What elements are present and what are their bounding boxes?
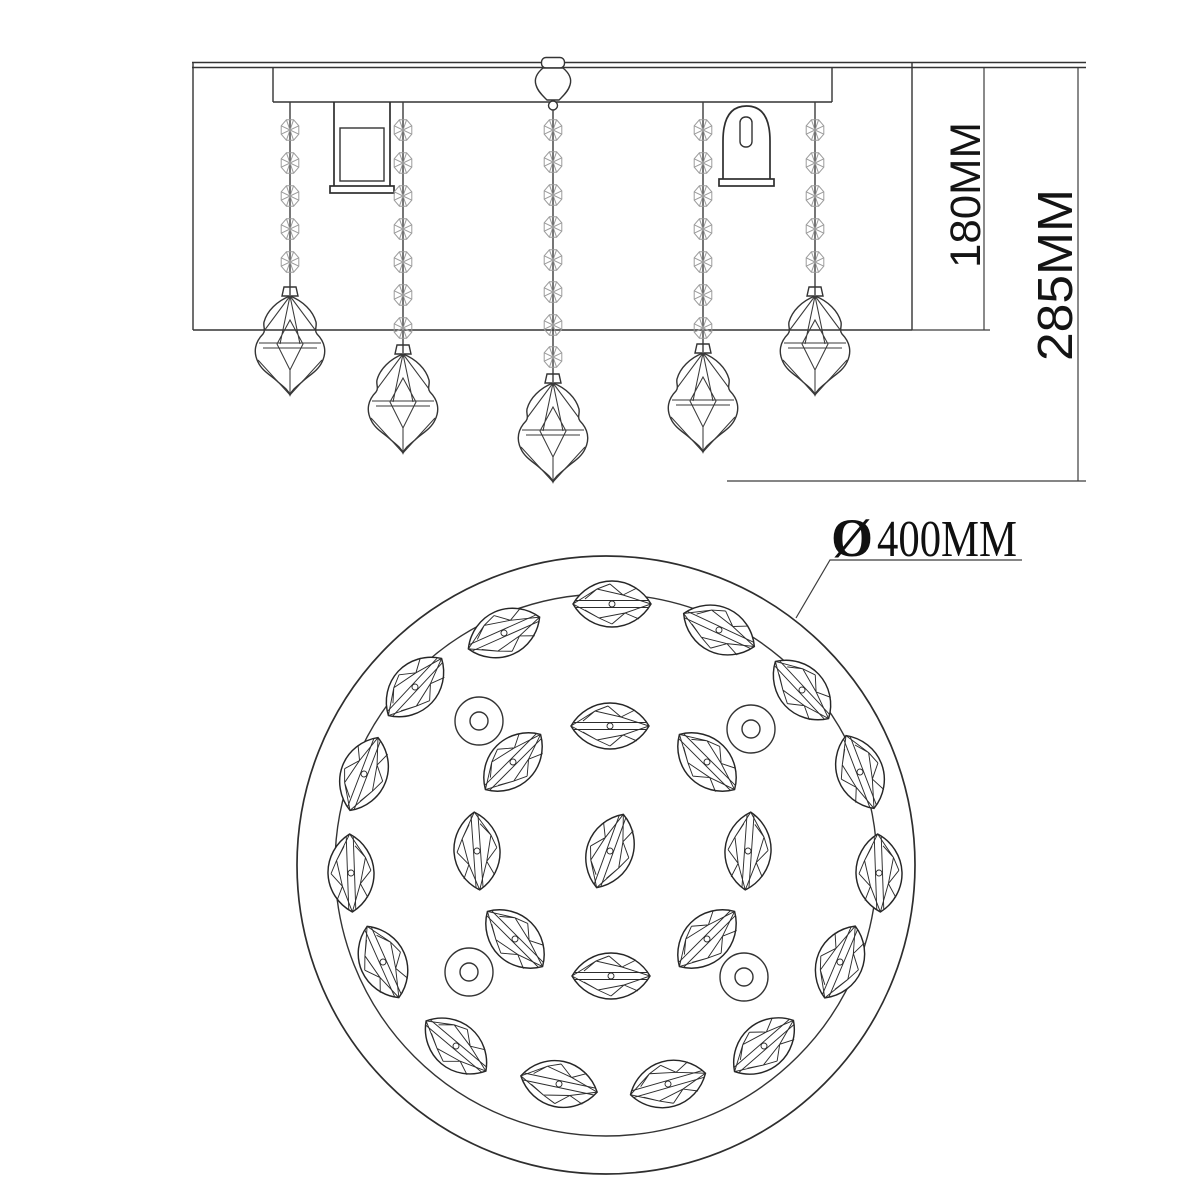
marquise-crystal bbox=[469, 718, 557, 806]
crystal-strand bbox=[368, 102, 437, 453]
pendant-drop bbox=[255, 287, 324, 395]
pendant-drop bbox=[518, 374, 587, 482]
elevation-view: 180MM 285MM bbox=[192, 58, 1086, 483]
marquise-crystal bbox=[516, 1053, 602, 1114]
technical-drawing-page: 180MM 285MM Ø 400MM bbox=[0, 0, 1200, 1200]
marquise-crystal bbox=[346, 917, 420, 1007]
marquise-crystal bbox=[471, 895, 559, 983]
pendant-drop bbox=[368, 345, 437, 453]
marquise-crystal bbox=[663, 718, 751, 806]
dimension-285: 285MM bbox=[727, 68, 1086, 481]
diameter-label: 400MM bbox=[877, 511, 1017, 568]
marquise-crystal bbox=[571, 703, 649, 749]
crystal-strands bbox=[255, 102, 849, 482]
marquise-crystal bbox=[573, 581, 651, 627]
crystal-strand bbox=[255, 102, 324, 395]
marquise-crystal bbox=[624, 1051, 712, 1117]
crystal-strand bbox=[518, 110, 587, 482]
marquise-crystal bbox=[759, 646, 846, 734]
lamp-holder-left bbox=[330, 102, 394, 193]
diameter-callout: Ø 400MM bbox=[796, 508, 1022, 618]
marquise-crystal bbox=[674, 593, 764, 668]
marquise-crystal bbox=[575, 806, 645, 895]
screw-hole bbox=[455, 697, 503, 745]
marquise-crystal bbox=[372, 643, 459, 731]
lamp-holder-right bbox=[719, 106, 774, 186]
marquise-crystal bbox=[459, 596, 549, 670]
ceiling-line bbox=[192, 63, 1086, 68]
marquise-crystal bbox=[411, 1003, 500, 1088]
plan-crystals bbox=[327, 581, 904, 1117]
marquise-crystal bbox=[451, 810, 502, 891]
lamp-technical-drawing: 180MM 285MM Ø 400MM bbox=[0, 0, 1200, 1200]
dimension-180: 180MM bbox=[912, 68, 990, 330]
pendant-drop bbox=[780, 287, 849, 395]
crystal-strand bbox=[780, 102, 849, 395]
marquise-crystal bbox=[329, 729, 400, 818]
dimension-label-285: 285MM bbox=[1029, 189, 1083, 361]
marquise-crystal bbox=[327, 833, 376, 913]
screw-hole bbox=[727, 705, 775, 753]
marquise-crystal bbox=[825, 727, 896, 816]
plan-view: Ø 400MM bbox=[297, 508, 1022, 1174]
marquise-crystal bbox=[719, 1003, 808, 1089]
screw-hole bbox=[720, 953, 768, 1001]
diameter-symbol: Ø bbox=[831, 508, 873, 568]
marquise-crystal bbox=[855, 833, 904, 913]
pendant-drop bbox=[668, 344, 737, 452]
marquise-crystal bbox=[804, 917, 877, 1007]
leader-line bbox=[796, 560, 1022, 618]
dimension-label-180: 180MM bbox=[942, 122, 990, 268]
marquise-crystal bbox=[722, 810, 773, 891]
crystal-strand bbox=[668, 102, 737, 452]
marquise-crystal bbox=[572, 953, 650, 999]
screw-hole bbox=[445, 948, 493, 996]
